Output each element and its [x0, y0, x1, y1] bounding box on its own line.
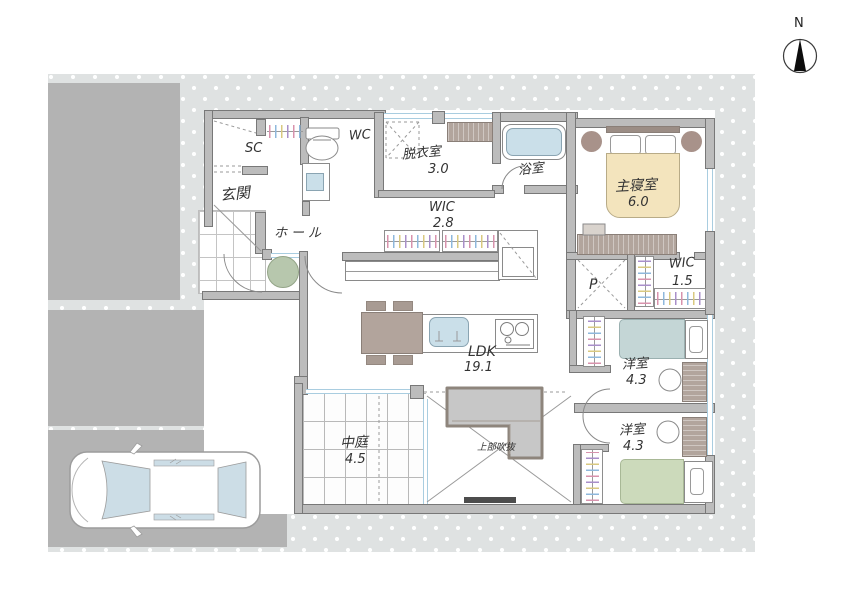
label-bedroom-upper: 洋室: [622, 357, 649, 373]
label-pantry: P: [589, 278, 597, 293]
closet-upper-rack: [583, 316, 605, 367]
kitchen-back-counter: [345, 261, 500, 281]
cooktop: [495, 319, 534, 349]
wall-sc-nub: [242, 166, 268, 175]
refrigerator: [502, 247, 534, 277]
dining-table: [361, 312, 423, 354]
desk-lower-room: [682, 417, 707, 457]
label-dressing-room-area: 3.0: [428, 163, 449, 177]
sc-hanger-rack: [267, 124, 303, 138]
label-bedroom-lower: 洋室: [619, 423, 646, 439]
pillow: [645, 135, 676, 155]
floor-plan: 玄関 SC WC 脱衣室 3.0 浴室 主寝室 6.0 ホール WIC 2.8 …: [0, 0, 842, 595]
wall-vanity-nub: [302, 201, 310, 216]
label-master-bedroom: 主寝室: [615, 178, 658, 196]
wic-master-rack-vertical: [635, 256, 654, 307]
tv: [464, 497, 516, 503]
label-shoe-closet: SC: [245, 142, 262, 156]
label-bathroom: 浴室: [517, 162, 544, 179]
compass-north-label: N: [794, 17, 804, 31]
bed-upper-blanket: [619, 319, 685, 359]
label-wic-upper-area: 2.8: [433, 217, 454, 231]
label-wic-master: WIC: [669, 256, 696, 272]
wic-upper-rack-left: [384, 230, 440, 252]
bathtub: [506, 128, 562, 156]
laundry-counter: [447, 122, 493, 142]
window-bedroom-east: [707, 169, 713, 232]
label-courtyard: 中庭: [340, 435, 369, 452]
wall-courtyard-left: [294, 383, 303, 514]
label-wic-upper: WIC: [429, 201, 455, 215]
label-hall: ホール: [274, 227, 325, 241]
wall-wc-right: [374, 112, 384, 198]
dining-chair: [366, 301, 386, 311]
wall-porch-bottom: [202, 291, 308, 300]
wall-sc-divider: [256, 119, 266, 136]
dining-chair: [366, 355, 386, 365]
dining-chair: [393, 301, 413, 311]
wall-pantry-wic-divider: [627, 254, 635, 312]
wall-post-top: [432, 111, 445, 124]
wall-genkan-hall-divider: [255, 212, 266, 254]
bedside-table-left: [581, 131, 602, 152]
wall-courtyard-post: [410, 385, 424, 399]
wall-dressing-wic-divider: [378, 190, 495, 198]
window-courtyard-right: [423, 399, 428, 504]
wall-right-top: [705, 118, 715, 169]
wall-bottom: [294, 504, 715, 514]
label-wic-master-area: 1.5: [672, 275, 693, 289]
pillow: [689, 326, 703, 353]
wic-upper-rack-right: [442, 230, 498, 252]
wic-master-rack-horizontal: [654, 288, 706, 309]
master-desk: [577, 234, 677, 255]
wall-left-entrance: [204, 110, 213, 227]
wall-bath-left: [492, 112, 501, 164]
kitchen-sink: [429, 317, 469, 347]
pillow: [610, 135, 641, 155]
pillow: [690, 468, 704, 495]
wall-kitchen-bedroom-divider: [566, 112, 576, 314]
vanity-sink: [306, 173, 324, 191]
wall-top-entrance: [204, 110, 386, 119]
bed-headboard: [606, 126, 680, 133]
window-courtyard-top: [306, 389, 410, 394]
label-courtyard-area: 4.5: [345, 453, 366, 467]
wall-closet-lower-left: [573, 444, 581, 506]
bed-lower-blanket: [620, 459, 684, 504]
entrance-plant: [267, 256, 299, 288]
wall-bedrooms-divider: [574, 403, 715, 413]
label-wc: WC: [349, 128, 372, 144]
label-bedroom-lower-area: 4.3: [623, 440, 644, 454]
label-master-bedroom-area: 6.0: [628, 196, 649, 210]
wall-ldk-west: [299, 251, 308, 392]
label-void-above: 上部吹抜: [477, 443, 515, 453]
wall-wic-ldk: [342, 252, 503, 261]
closet-lower-rack: [581, 449, 603, 504]
wall-corridor-left: [569, 310, 577, 372]
label-genkan: 玄関: [219, 184, 251, 204]
compass-icon: [784, 39, 817, 73]
site-block-upper: [48, 83, 180, 300]
dining-chair: [393, 355, 413, 365]
label-ldk: LDK: [468, 345, 496, 360]
bedside-table-right: [681, 131, 702, 152]
desk-upper-room: [682, 362, 707, 402]
wall-right-mid: [705, 231, 715, 315]
label-bedroom-upper-area: 4.3: [626, 374, 647, 388]
label-ldk-area: 19.1: [464, 361, 493, 375]
